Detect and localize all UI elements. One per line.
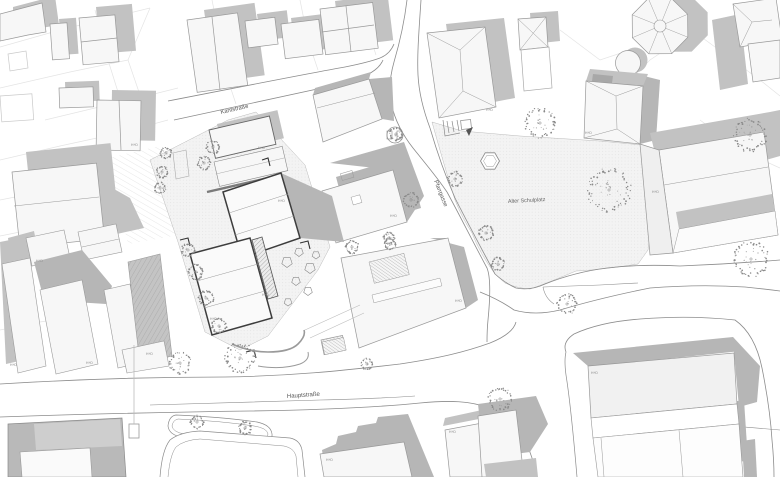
svg-text:H+D: H+D: [10, 363, 17, 367]
svg-text:H+D: H+D: [390, 214, 397, 218]
svg-text:H+D: H+D: [326, 458, 333, 462]
svg-text:H+D: H+D: [652, 190, 659, 194]
svg-text:H+D: H+D: [591, 371, 598, 375]
svg-text:H+D: H+D: [36, 259, 43, 263]
svg-text:H+D: H+D: [449, 430, 456, 434]
svg-text:H+D: H+D: [278, 199, 285, 203]
svg-text:H+D: H+D: [455, 299, 462, 303]
svg-text:H+D: H+D: [210, 317, 217, 321]
svg-text:H+D: H+D: [585, 131, 592, 135]
svg-text:H+D: H+D: [86, 361, 93, 365]
svg-text:H+D: H+D: [146, 352, 153, 356]
svg-text:H+D: H+D: [486, 108, 493, 112]
svg-text:H+D: H+D: [258, 146, 265, 150]
svg-text:H+D: H+D: [262, 293, 269, 297]
svg-text:H+D: H+D: [131, 143, 138, 147]
